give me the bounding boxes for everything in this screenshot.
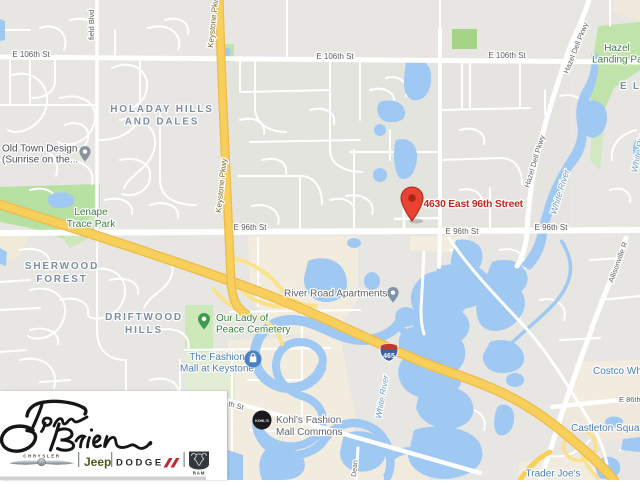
svg-text:E 86th: E 86th [619, 395, 640, 404]
svg-text:Mall at Keystone: Mall at Keystone [180, 364, 254, 375]
svg-text:(Sunrise on the...: (Sunrise on the... [2, 155, 78, 166]
svg-text:E 96th St: E 96th St [234, 223, 268, 232]
svg-text:Lenape: Lenape [74, 207, 108, 218]
svg-text:E 106th St: E 106th St [488, 51, 526, 60]
svg-text:The Fashion: The Fashion [189, 352, 245, 363]
svg-text:AND DALES: AND DALES [125, 117, 200, 128]
svg-text:E L: E L [620, 81, 640, 92]
svg-text:Costco Wh: Costco Wh [593, 366, 640, 377]
svg-text:E 96th St: E 96th St [446, 227, 480, 236]
svg-text:Hazel: Hazel [604, 43, 630, 54]
svg-text:DRIFTWOOD: DRIFTWOOD [105, 312, 183, 323]
svg-text:E 106th St: E 106th St [316, 52, 354, 61]
svg-text:Trader Joe's: Trader Joe's [526, 469, 581, 480]
svg-text:SHERWOOD: SHERWOOD [25, 261, 99, 272]
svg-text:Peace Cemetery: Peace Cemetery [216, 325, 290, 336]
svg-text:DODGE: DODGE [116, 458, 164, 469]
svg-text:E 96th St: E 96th St [535, 223, 569, 232]
svg-text:field Blvd: field Blvd [87, 10, 96, 40]
svg-text:River Road Apartments: River Road Apartments [284, 289, 387, 300]
svg-text:Jeep: Jeep [84, 455, 111, 469]
svg-text:Mall Commons: Mall Commons [276, 427, 343, 438]
svg-text:Dean: Dean [351, 460, 359, 477]
svg-text:RAM: RAM [193, 471, 205, 476]
svg-text:FOREST: FOREST [36, 274, 87, 285]
svg-text:HILLS: HILLS [125, 325, 163, 336]
svg-text:Castleton Squa: Castleton Squa [571, 423, 640, 434]
svg-text:CHRYSLER: CHRYSLER [23, 454, 61, 459]
svg-text:KOHL'S: KOHL'S [255, 419, 269, 423]
svg-text:Old Town Design: Old Town Design [2, 144, 77, 155]
svg-text:465: 465 [383, 353, 395, 360]
svg-text:E 106th St: E 106th St [12, 50, 50, 59]
svg-text:4630 East 96th Street: 4630 East 96th Street [424, 199, 524, 210]
svg-text:Trace Park: Trace Park [67, 219, 117, 230]
svg-text:Our Lady of: Our Lady of [216, 313, 268, 324]
svg-text:Landing Par: Landing Par [592, 55, 640, 66]
svg-text:HOLADAY HILLS: HOLADAY HILLS [110, 104, 213, 115]
svg-text:Kohl's Fashion: Kohl's Fashion [276, 415, 341, 426]
